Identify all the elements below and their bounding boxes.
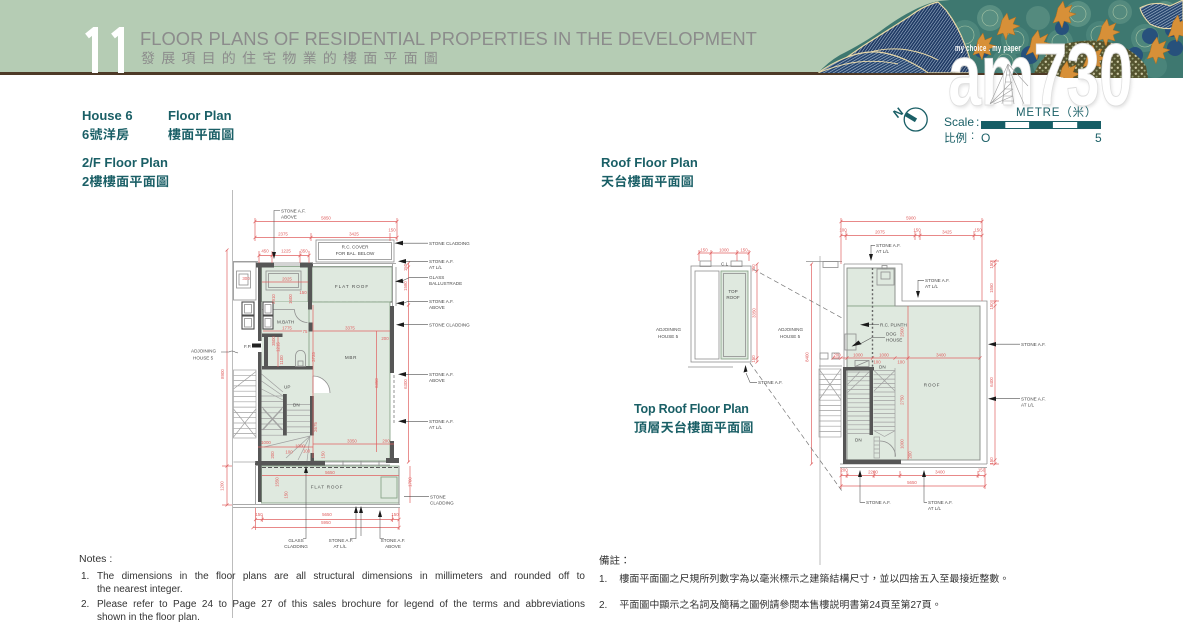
svg-text:1000: 1000 <box>853 353 863 358</box>
svg-text:6400: 6400 <box>989 377 994 387</box>
svg-text:5650: 5650 <box>907 480 917 485</box>
svg-text:ROOF: ROOF <box>726 295 739 300</box>
svg-text:STONE A.F.: STONE A.F. <box>429 299 454 304</box>
svg-text:ADJOINING: ADJOINING <box>778 327 803 332</box>
svg-text:CLADDING: CLADDING <box>284 544 308 549</box>
svg-text:ABOVE: ABOVE <box>429 305 445 310</box>
svg-text:2500: 2500 <box>900 327 905 337</box>
svg-text:R.C. COVER: R.C. COVER <box>342 245 369 250</box>
svg-text:8400: 8400 <box>805 352 810 362</box>
svg-text:ABOVE: ABOVE <box>429 378 445 383</box>
svg-text:1550: 1550 <box>989 283 994 293</box>
svg-text:3425: 3425 <box>942 230 952 235</box>
svg-text:350: 350 <box>300 249 308 254</box>
svg-text:STONE A.F.: STONE A.F. <box>866 500 891 505</box>
svg-text:DN: DN <box>293 403 300 408</box>
svg-text:ADJOINING: ADJOINING <box>656 327 681 332</box>
svg-text:2075: 2075 <box>875 230 885 235</box>
svg-text:HOUSE 5: HOUSE 5 <box>658 334 679 339</box>
svg-text:ADJOINING: ADJOINING <box>191 349 216 354</box>
svg-text:3350: 3350 <box>347 439 357 444</box>
svg-text:2675: 2675 <box>313 422 318 432</box>
svg-text:150: 150 <box>989 457 994 465</box>
svg-text:100: 100 <box>873 360 881 365</box>
svg-text:6350: 6350 <box>374 378 379 388</box>
svg-text:MBR: MBR <box>345 355 357 360</box>
svg-text:2750: 2750 <box>900 395 905 405</box>
svg-text:STONE A.F.: STONE A.F. <box>928 500 953 505</box>
svg-text:200: 200 <box>270 451 275 459</box>
svg-text:FOR BAL. BELOW: FOR BAL. BELOW <box>336 251 375 256</box>
svg-text:1700: 1700 <box>408 477 413 487</box>
svg-text:AT L/L: AT L/L <box>925 284 939 289</box>
svg-text:150: 150 <box>700 248 708 253</box>
svg-text:STONE A.F.: STONE A.F. <box>925 278 950 283</box>
svg-text:2025: 2025 <box>282 277 292 282</box>
svg-text:CLADDING: CLADDING <box>430 501 454 506</box>
svg-text:1580: 1580 <box>403 281 408 291</box>
svg-text:150: 150 <box>751 355 756 363</box>
svg-text:STONE A.F.: STONE A.F. <box>429 372 454 377</box>
svg-text:3400: 3400 <box>936 353 946 358</box>
svg-text:100: 100 <box>303 449 311 454</box>
svg-text:200: 200 <box>833 353 841 358</box>
svg-text:AT L/L: AT L/L <box>429 265 443 270</box>
svg-text:1200: 1200 <box>220 481 225 491</box>
svg-text:STONE A.F.: STONE A.F. <box>281 209 306 214</box>
svg-text:DOG: DOG <box>886 332 897 337</box>
svg-text:1600: 1600 <box>288 294 293 304</box>
svg-text:200: 200 <box>382 439 390 444</box>
svg-text:8900: 8900 <box>220 369 225 379</box>
svg-text:200: 200 <box>381 336 389 341</box>
svg-text:DN: DN <box>879 365 886 370</box>
svg-text:1000: 1000 <box>261 440 271 445</box>
svg-text:5950: 5950 <box>321 520 331 525</box>
svg-text:STONE CLADDING: STONE CLADDING <box>429 241 470 246</box>
svg-text:100: 100 <box>839 228 847 233</box>
svg-text:M.BATH: M.BATH <box>277 320 294 325</box>
svg-text:750: 750 <box>751 264 756 272</box>
svg-text:UP: UP <box>284 385 290 390</box>
svg-text:GLASS: GLASS <box>429 275 444 280</box>
svg-text:150: 150 <box>299 290 307 295</box>
svg-text:3500: 3500 <box>271 336 276 346</box>
svg-text:150: 150 <box>388 228 396 233</box>
svg-text:150: 150 <box>989 302 994 310</box>
svg-text:1225: 1225 <box>281 249 291 254</box>
svg-text:AT L/L: AT L/L <box>928 506 942 511</box>
svg-text:AT L/L: AT L/L <box>429 425 443 430</box>
svg-text:150: 150 <box>321 451 326 459</box>
svg-text:450: 450 <box>261 249 269 254</box>
svg-text:1775: 1775 <box>282 326 292 331</box>
svg-text:ABOVE: ABOVE <box>281 215 297 220</box>
svg-text:5650: 5650 <box>325 470 335 475</box>
svg-text:3375: 3375 <box>345 326 355 331</box>
svg-text:STONE A.F.: STONE A.F. <box>1021 397 1046 402</box>
svg-text:1550: 1550 <box>275 477 280 487</box>
svg-text:5900: 5900 <box>906 216 916 221</box>
svg-text:5850: 5850 <box>321 216 331 221</box>
svg-text:200: 200 <box>908 451 913 459</box>
svg-text:ROOF: ROOF <box>924 383 940 388</box>
svg-text:3350: 3350 <box>752 308 757 318</box>
svg-text:150: 150 <box>989 261 994 269</box>
svg-text:HOUSE 5: HOUSE 5 <box>780 334 801 339</box>
svg-text:2375: 2375 <box>278 232 288 237</box>
svg-text:300: 300 <box>242 276 250 281</box>
svg-text:3425: 3425 <box>349 232 359 237</box>
svg-text:BALLUSTRADE: BALLUSTRADE <box>429 281 462 286</box>
svg-text:1000: 1000 <box>900 439 905 449</box>
svg-text:150: 150 <box>913 228 921 233</box>
svg-text:GLASS: GLASS <box>288 538 303 543</box>
svg-text:3725: 3725 <box>311 352 316 362</box>
svg-text:1100: 1100 <box>279 355 284 365</box>
svg-text:150: 150 <box>740 248 748 253</box>
svg-text:100: 100 <box>285 450 293 455</box>
svg-text:STONE A.F.: STONE A.F. <box>429 259 454 264</box>
svg-text:ABOVE: ABOVE <box>385 544 401 549</box>
svg-text:100: 100 <box>897 360 905 365</box>
svg-text:AT L/L: AT L/L <box>333 544 347 549</box>
svg-text:150: 150 <box>391 512 399 517</box>
svg-text:1000: 1000 <box>879 353 889 358</box>
svg-text:5650: 5650 <box>322 512 332 517</box>
svg-text:TOP: TOP <box>728 289 737 294</box>
svg-text:150: 150 <box>974 228 982 233</box>
svg-text:2910: 2910 <box>271 294 276 304</box>
svg-text:6300: 6300 <box>403 379 408 389</box>
svg-text:3400: 3400 <box>935 470 945 475</box>
svg-text:C.L: C.L <box>721 262 729 267</box>
svg-text:STONE A.F.: STONE A.F. <box>329 538 354 543</box>
svg-text:200: 200 <box>840 468 848 473</box>
svg-text:STONE A.F.: STONE A.F. <box>381 538 406 543</box>
svg-text:AT L/L: AT L/L <box>876 249 890 254</box>
svg-text:FLAT ROOF: FLAT ROOF <box>311 485 344 490</box>
svg-text:STONE A.F.: STONE A.F. <box>876 243 901 248</box>
svg-text:STONE A.F.: STONE A.F. <box>1021 342 1046 347</box>
svg-text:1215: 1215 <box>276 342 281 352</box>
svg-text:1000: 1000 <box>719 248 729 253</box>
svg-text:STONE CLADDING: STONE CLADDING <box>429 323 470 328</box>
svg-text:F.P.: F.P. <box>244 344 251 349</box>
svg-text:150: 150 <box>978 468 986 473</box>
svg-text:STONE: STONE <box>430 495 446 500</box>
svg-text:AT L/L: AT L/L <box>1021 403 1035 408</box>
svg-text:STONE A.F.: STONE A.F. <box>758 380 783 385</box>
svg-text:FLAT ROOF: FLAT ROOF <box>335 284 369 289</box>
svg-text:HOUSE: HOUSE <box>886 338 902 343</box>
svg-text:DN: DN <box>855 438 862 443</box>
svg-text:150: 150 <box>284 491 289 499</box>
svg-text:STONE A.F.: STONE A.F. <box>429 419 454 424</box>
svg-text:75: 75 <box>303 329 308 334</box>
svg-text:R.C. PLINTH: R.C. PLINTH <box>880 323 907 328</box>
svg-text:2200: 2200 <box>868 470 878 475</box>
svg-text:HOUSE 5: HOUSE 5 <box>193 356 214 361</box>
svg-text:150: 150 <box>255 512 263 517</box>
svg-text:150: 150 <box>403 263 408 271</box>
